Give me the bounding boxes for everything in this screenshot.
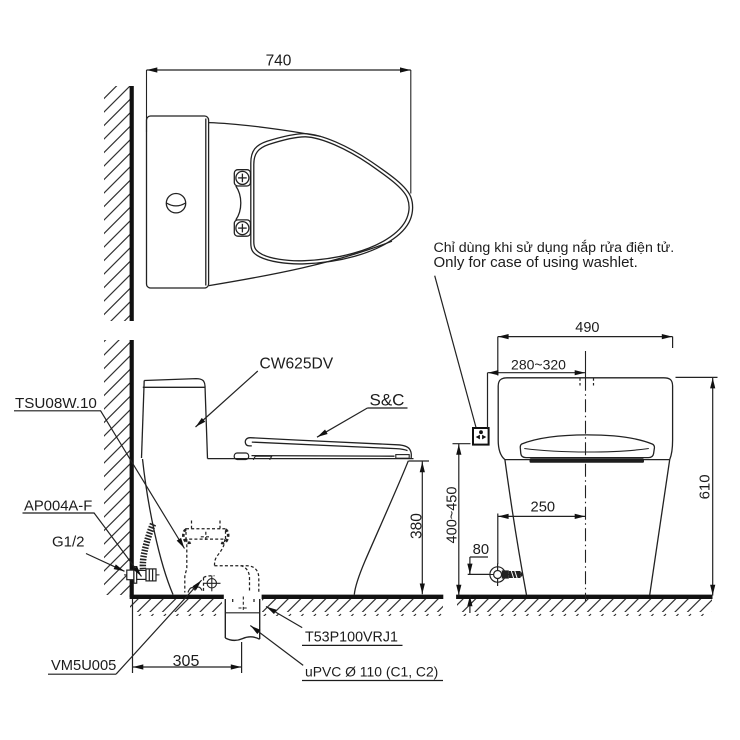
svg-text:80: 80: [473, 542, 489, 558]
svg-text:G1/2: G1/2: [52, 534, 85, 551]
svg-text:T53P100VRJ1: T53P100VRJ1: [305, 630, 398, 646]
svg-text:400~450: 400~450: [444, 487, 460, 544]
svg-text:305: 305: [173, 653, 200, 670]
svg-text:VM5U005: VM5U005: [51, 658, 116, 674]
svg-text:uPVC Ø 110 (C1, C2): uPVC Ø 110 (C1, C2): [305, 664, 438, 680]
svg-text:250: 250: [531, 500, 556, 516]
svg-text:TSU08W.10: TSU08W.10: [15, 395, 97, 412]
svg-text:S&C: S&C: [370, 391, 405, 410]
svg-text:AP004A-F: AP004A-F: [24, 499, 92, 515]
svg-text:Only for case of using washlet: Only for case of using washlet.: [434, 254, 638, 271]
svg-text:280~320: 280~320: [511, 356, 566, 372]
svg-text:740: 740: [266, 53, 292, 70]
svg-text:610: 610: [697, 474, 714, 499]
svg-text:380: 380: [409, 513, 426, 539]
svg-text:CW625DV: CW625DV: [260, 356, 334, 373]
svg-text:490: 490: [575, 320, 599, 336]
